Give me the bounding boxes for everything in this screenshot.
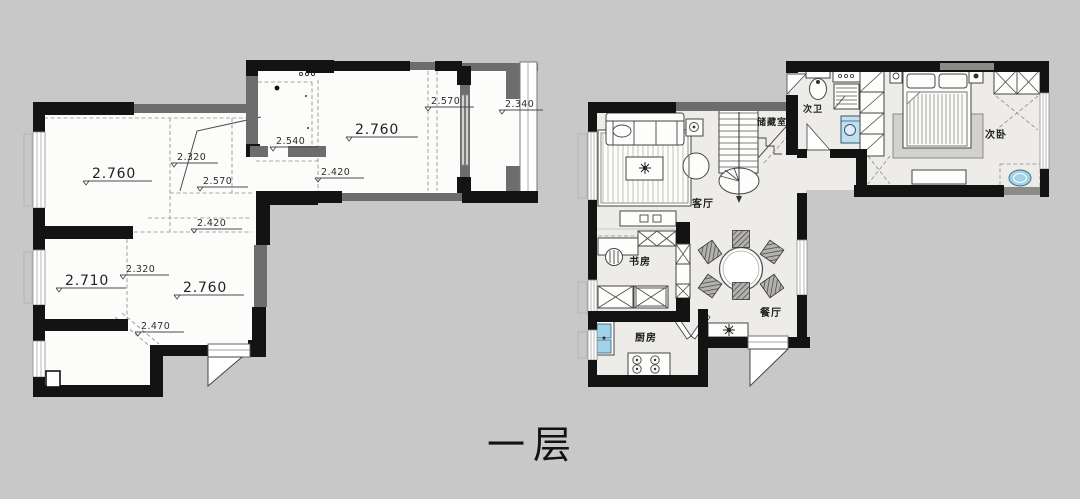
- kitchen-sink: [597, 340, 611, 353]
- closet-notch: [46, 371, 60, 387]
- right-floor-plan: 客厅 储藏室 次卫 次卧 书房 餐厅 厨房: [578, 61, 1049, 387]
- room-label: 餐厅: [759, 306, 782, 319]
- sofa: [606, 113, 684, 145]
- svg-text:2.760: 2.760: [92, 166, 136, 182]
- balcony-railing: [520, 62, 537, 199]
- left-plan-door: [208, 344, 250, 386]
- basin: [1009, 170, 1031, 186]
- svg-text:2.710: 2.710: [65, 273, 109, 289]
- room-label: 储藏室: [757, 116, 787, 128]
- room-label: 厨房: [635, 331, 657, 344]
- pillow: [939, 74, 967, 88]
- svg-text:2.320: 2.320: [177, 152, 206, 163]
- armchair: [683, 153, 709, 179]
- room-label: 书房: [629, 255, 651, 268]
- svg-text:2.540: 2.540: [276, 136, 305, 147]
- room-label: 次卧: [985, 128, 1007, 141]
- svg-text:2.340: 2.340: [505, 99, 534, 110]
- pillow: [907, 74, 935, 88]
- svg-text:2.320: 2.320: [126, 264, 155, 275]
- floor-title: 一层: [487, 423, 579, 467]
- towel-radiator: [833, 71, 860, 82]
- kitchen-sink: [597, 324, 611, 338]
- svg-text:2.420: 2.420: [321, 167, 350, 178]
- room-label: 次卫: [803, 103, 823, 115]
- floor-plan-image: 2.760 2.320 2.570 2.420 2.540 2.760 2.57…: [0, 0, 1080, 499]
- room-label: 客厅: [691, 197, 714, 210]
- svg-text:2.760: 2.760: [183, 280, 227, 296]
- wardrobe-cabinet: [638, 231, 676, 246]
- dining-chair: [733, 283, 750, 300]
- svg-text:2.570: 2.570: [203, 176, 232, 187]
- bench: [912, 170, 966, 184]
- svg-text:2.470: 2.470: [141, 321, 170, 332]
- svg-text:2.570: 2.570: [431, 96, 460, 107]
- door-swing: [208, 357, 242, 386]
- left-floor-plan: 2.760 2.320 2.570 2.420 2.540 2.760 2.57…: [24, 60, 543, 397]
- svg-text:2.420: 2.420: [197, 218, 226, 229]
- entry-door-swing: [750, 349, 788, 386]
- dining-chair: [733, 231, 750, 248]
- svg-text:2.760: 2.760: [355, 122, 399, 138]
